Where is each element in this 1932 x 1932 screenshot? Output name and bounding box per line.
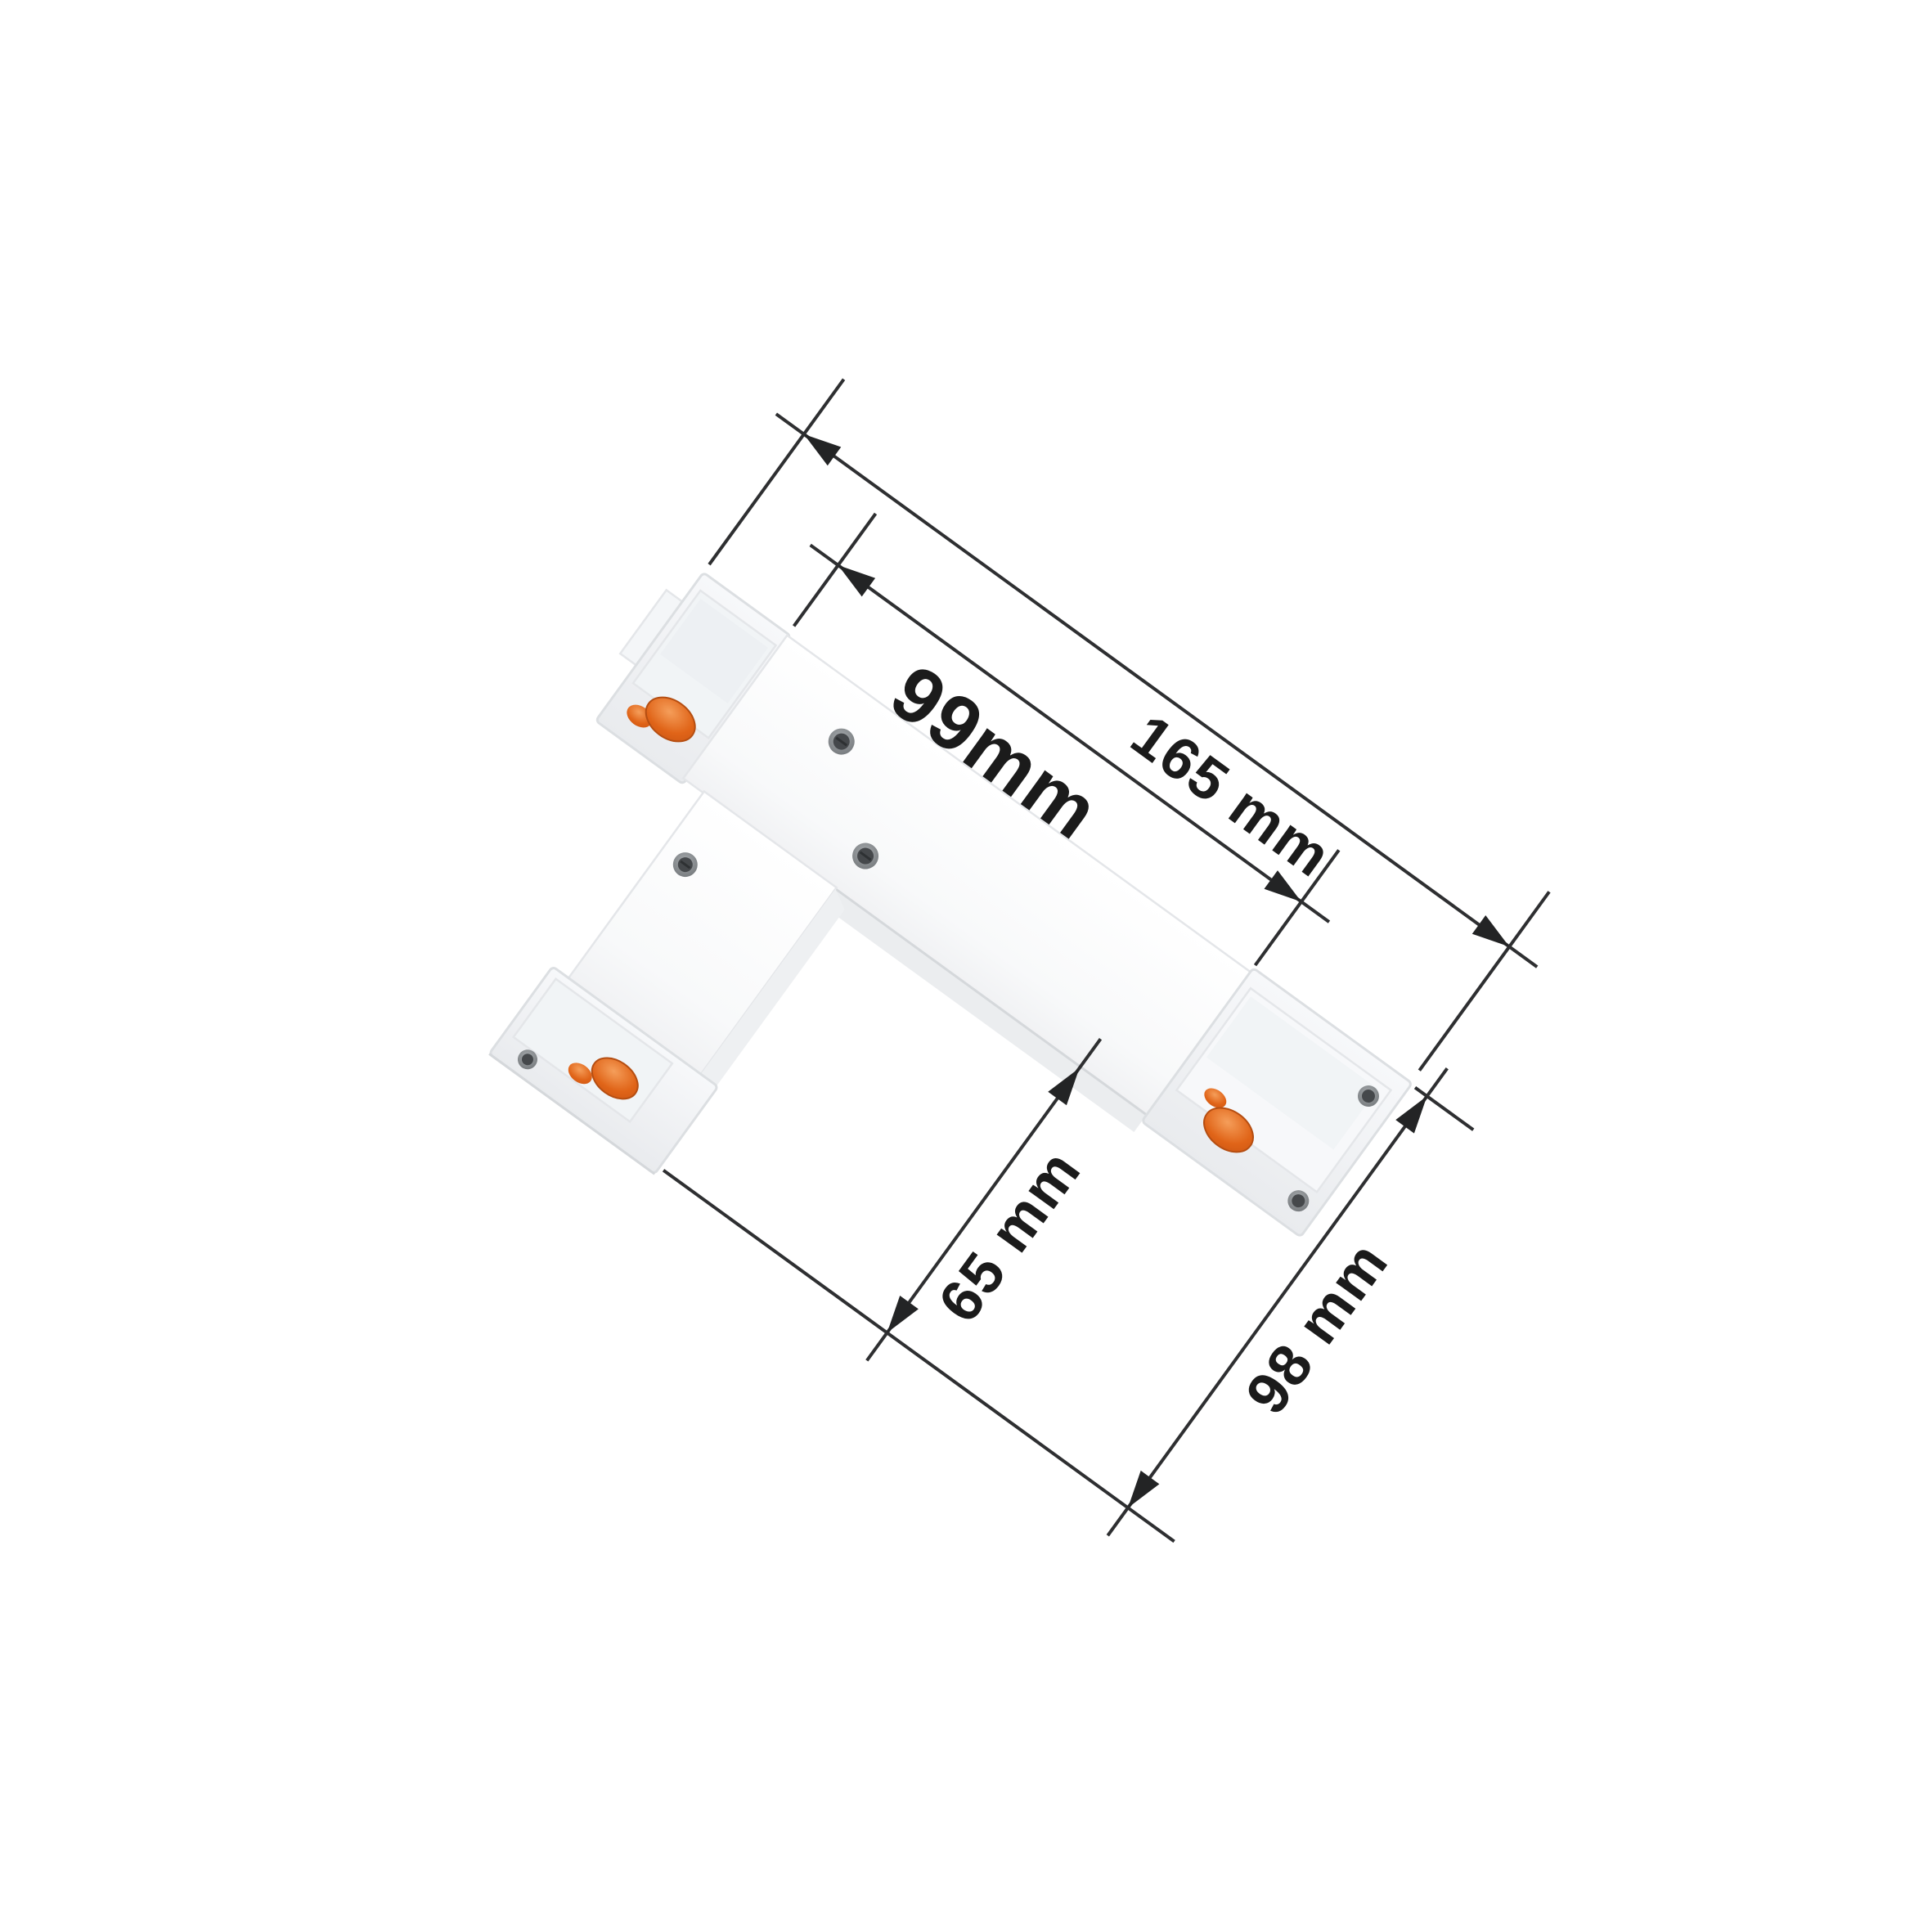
diagram-canvas: 165 mm 99mm 65 mm (0, 0, 1932, 1932)
arrowhead-icon (798, 425, 842, 465)
extension-line-left-outer (709, 380, 844, 565)
arrowhead-icon (878, 1296, 919, 1340)
arrowhead-icon (1472, 915, 1516, 956)
dimension-diagram: 165 mm 99mm 65 mm (0, 0, 1932, 1932)
extension-line-left-inner (794, 514, 876, 627)
dim-label-total-length: 165 mm (1120, 703, 1344, 890)
arrowhead-icon (1119, 1471, 1160, 1515)
rotated-scene: 165 mm 99mm 65 mm (357, 359, 1631, 1583)
extension-line-bottom-width (663, 1170, 1175, 1542)
arrowhead-icon (831, 556, 875, 597)
extension-line-top-width (1415, 1088, 1473, 1130)
dim-label-stem-depth: 65 mm (926, 1138, 1094, 1334)
